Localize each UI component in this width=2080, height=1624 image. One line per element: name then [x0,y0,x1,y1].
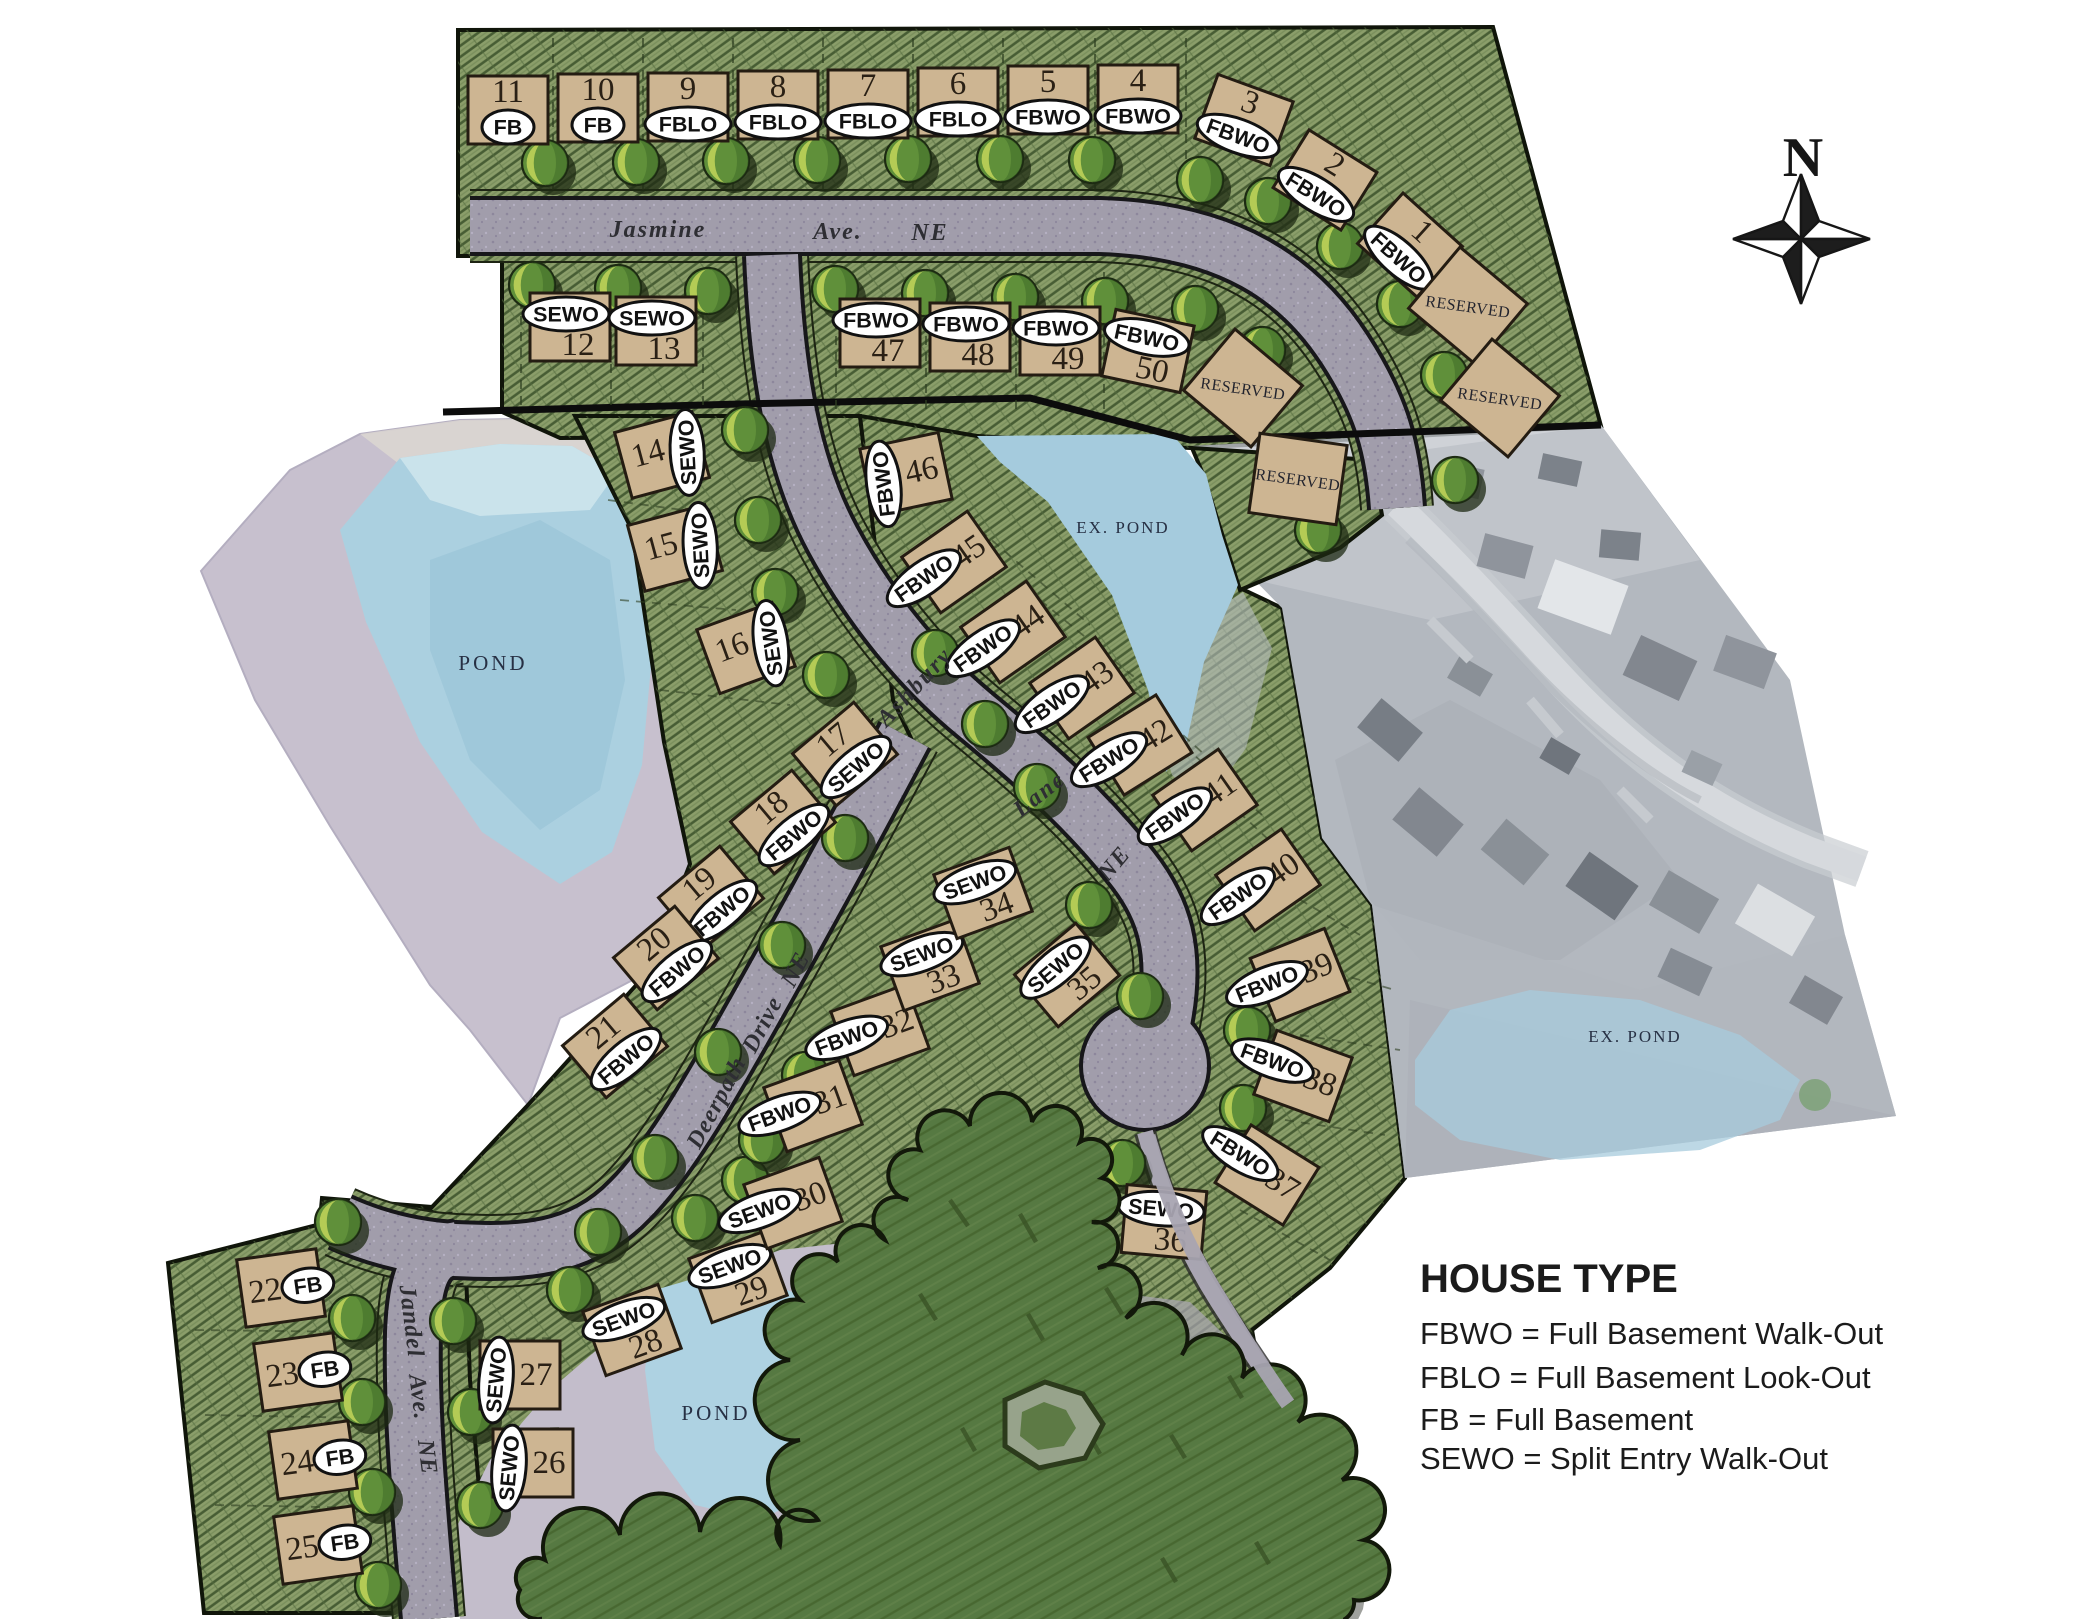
svg-text:FBWO: FBWO [1015,106,1081,130]
svg-text:POND: POND [681,1401,750,1425]
svg-text:FBWO: FBWO [1023,317,1089,341]
svg-text:FB: FB [494,116,523,140]
svg-text:SEWO: SEWO [687,512,714,579]
svg-text:22: 22 [246,1271,284,1311]
svg-text:FBWO: FBWO [933,313,999,337]
svg-text:FBWO: FBWO [843,309,909,333]
svg-text:FBWO: FBWO [1105,105,1171,129]
svg-text:FBWO = Full Basement Walk-Out: FBWO = Full Basement Walk-Out [1420,1316,1883,1351]
svg-text:EX. POND: EX. POND [1076,518,1169,537]
svg-text:FB = Full Basement: FB = Full Basement [1420,1402,1693,1437]
svg-text:5: 5 [1040,64,1057,100]
svg-text:9: 9 [680,71,697,107]
svg-text:11: 11 [492,74,524,110]
svg-text:Jasmine: Jasmine [609,217,707,243]
svg-text:POND: POND [458,651,527,675]
svg-text:8: 8 [770,69,787,105]
svg-text:27: 27 [520,1357,553,1393]
svg-text:7: 7 [860,68,877,104]
svg-text:SEWO: SEWO [533,303,599,327]
svg-text:FBLO: FBLO [839,110,898,134]
svg-text:SEWO: SEWO [674,419,701,486]
svg-text:FB: FB [309,1356,341,1384]
svg-text:HOUSE TYPE: HOUSE TYPE [1420,1257,1678,1301]
svg-text:26: 26 [533,1445,566,1481]
svg-text:23: 23 [263,1355,301,1395]
svg-text:4: 4 [1130,63,1147,99]
svg-text:FB: FB [292,1272,324,1300]
svg-text:FB: FB [584,114,613,138]
svg-text:NE: NE [910,220,948,246]
svg-text:FBLO: FBLO [659,113,718,137]
svg-text:24: 24 [278,1443,316,1483]
svg-text:SEWO: SEWO [619,307,685,331]
svg-text:FBLO: FBLO [749,111,808,135]
svg-text:FB: FB [329,1529,361,1557]
svg-text:FBLO: FBLO [929,108,988,132]
svg-text:NE: NE [412,1437,442,1476]
svg-text:6: 6 [950,66,967,102]
svg-text:EX. POND: EX. POND [1588,1027,1681,1046]
svg-text:FB: FB [324,1444,356,1472]
svg-text:FBLO = Full Basement Look-Out: FBLO = Full Basement Look-Out [1420,1360,1871,1395]
svg-text:25: 25 [283,1528,321,1568]
svg-text:Ave.: Ave. [811,219,863,245]
svg-text:10: 10 [582,72,615,108]
svg-text:SEWO = Split Entry Walk-Out: SEWO = Split Entry Walk-Out [1420,1441,1828,1476]
